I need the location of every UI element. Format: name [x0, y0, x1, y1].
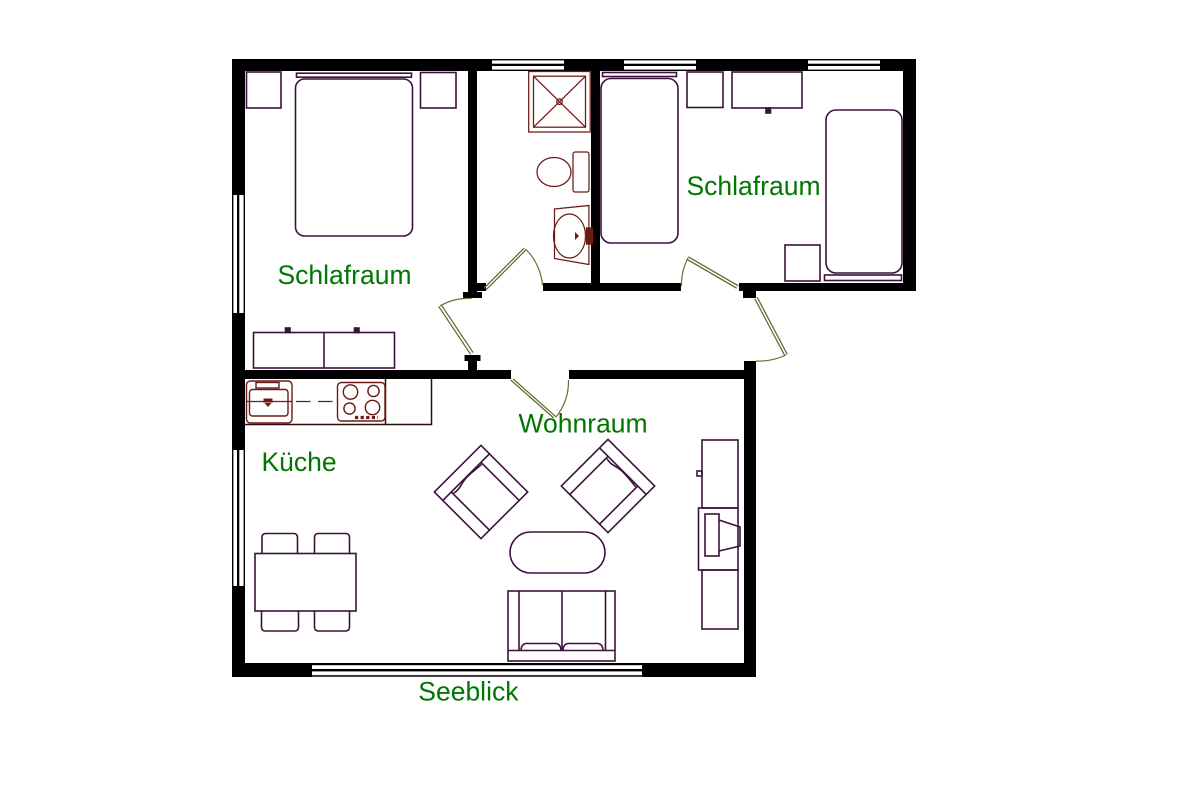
svg-text:Wohnraum: Wohnraum	[519, 408, 648, 438]
svg-text:Schlafraum: Schlafraum	[278, 260, 412, 290]
svg-text:Küche: Küche	[262, 447, 337, 477]
svg-text:Seeblick: Seeblick	[418, 677, 519, 707]
svg-text:Schlafraum: Schlafraum	[687, 171, 821, 201]
